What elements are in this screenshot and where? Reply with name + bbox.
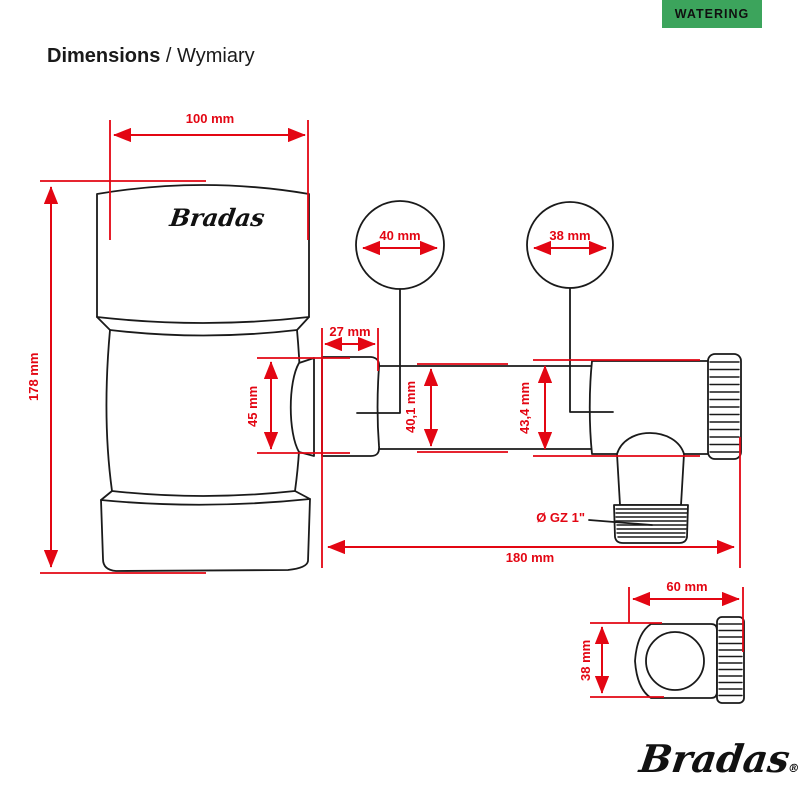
registered-mark: ® — [787, 761, 800, 775]
footer-brand-logo-text: Bradas — [637, 736, 793, 781]
dim-label-tank-width: 100 mm — [160, 112, 260, 125]
callout-circle-38 — [527, 202, 613, 288]
tank-brand-logo: Bradas — [168, 206, 266, 230]
valve-connector — [322, 357, 379, 456]
dim-label-connector-diameter: 45 mm — [246, 367, 259, 445]
dim-label-thread: Ø GZ 1" — [495, 511, 585, 524]
callout-circle-40 — [356, 201, 444, 289]
valve-side-view — [291, 201, 741, 543]
dim-label-body-diameter: 43,4 mm — [518, 366, 531, 450]
dim-label-connector-length: 27 mm — [310, 325, 390, 338]
dim-label-tank-height: 178 mm — [27, 337, 40, 417]
tank-front-view — [97, 185, 310, 571]
dim-label-total-length: 180 mm — [478, 551, 582, 564]
valve-outlet-pipe — [617, 433, 684, 505]
dim-label-side-width: 60 mm — [645, 580, 729, 593]
dim-label-callout-right: 38 mm — [530, 229, 610, 242]
tank-brand-logo-text: Bradas — [168, 203, 266, 232]
page: WATERING Dimensions / Wymiary — [0, 0, 800, 799]
valve-dome-cap — [291, 358, 314, 456]
dim-label-tube-diameter: 40,1 mm — [404, 367, 417, 447]
technical-drawing — [0, 0, 800, 799]
footer-brand-logo: Bradas® — [637, 740, 800, 778]
dim-label-side-height: 38 mm — [579, 624, 592, 696]
valve-end-view — [635, 617, 744, 703]
dim-label-callout-left: 40 mm — [360, 229, 440, 242]
